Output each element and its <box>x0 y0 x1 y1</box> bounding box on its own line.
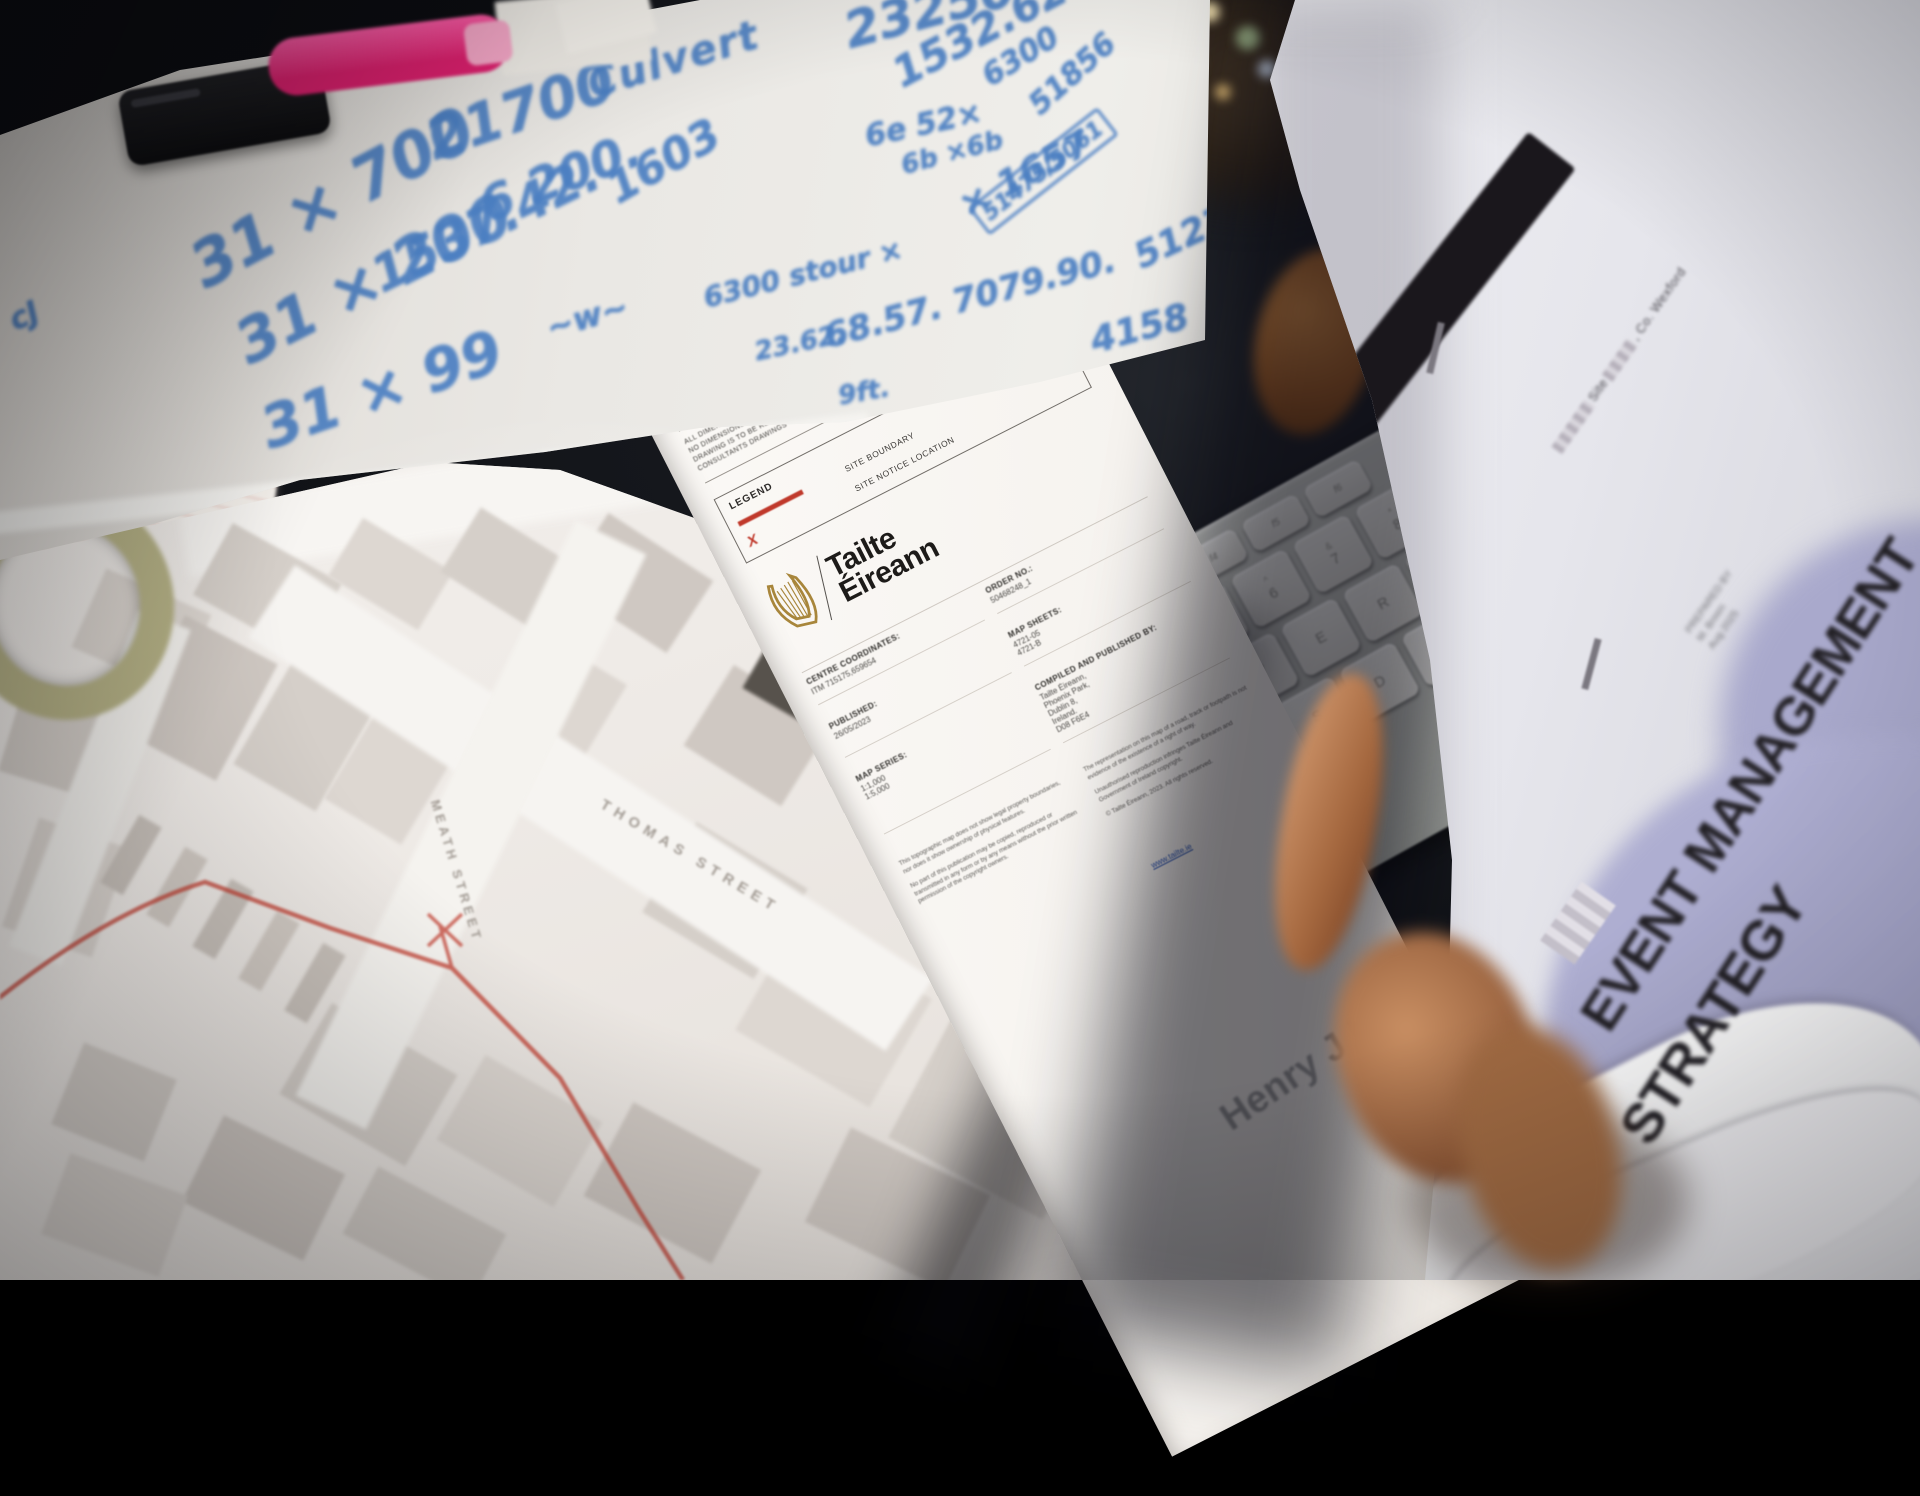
whiteboard-note: ~w~ <box>542 287 632 346</box>
whiteboard-note: cJ <box>4 294 45 338</box>
bokeh-light <box>1236 26 1260 50</box>
photo-desk-scene: { "colors":{"marker_blue":"#4b7fc2","bou… <box>0 0 1920 1280</box>
bokeh-light <box>1215 84 1231 100</box>
whiteboard-note: 1603 <box>598 109 730 214</box>
cover-dash <box>1581 638 1601 690</box>
harp-icon <box>758 566 827 642</box>
whiteboard-note: 9ft. <box>836 373 892 412</box>
booklet-subtitle: Site, Co. Wexford <box>1548 264 1689 456</box>
whiteboard-note: 6300 stour × <box>700 233 906 314</box>
brand-name: Tailte Éireann <box>822 508 943 607</box>
redaction-mosaic <box>1602 338 1638 381</box>
redaction-mosaic <box>1551 399 1595 454</box>
